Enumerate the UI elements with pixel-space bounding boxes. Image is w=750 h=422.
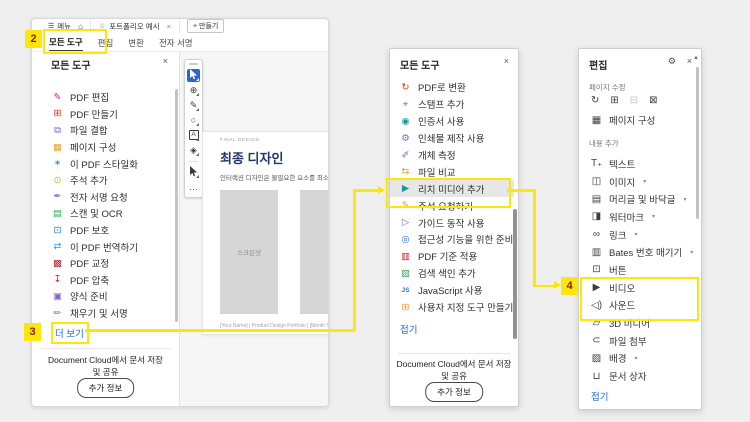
tool-item-custom-tool[interactable]: ⊞ 사용자 지정 도구 만들기 ▾ [390, 299, 514, 316]
section-label-add-content: 내용 추가 [589, 138, 619, 149]
tool-item-guided-actions[interactable]: ▷ 가이드 동작 사용 ▾ [390, 214, 514, 231]
tool-label: 사운드 [609, 298, 635, 312]
star-icon[interactable]: ☆ [99, 22, 105, 30]
tool-icon: ◁) [591, 300, 602, 311]
lasso-tool-icon[interactable]: ○ [187, 114, 200, 127]
scrollbar[interactable] [175, 89, 178, 322]
tool-item-convert-to-pdf[interactable]: ↻ PDF로 변환 ▾ [390, 79, 514, 96]
tool-item-request-comments[interactable]: ✎ 주석 요청하기 ▾ [390, 197, 514, 214]
tool-icon: ✏ [52, 308, 63, 319]
tool-label: 주석 추가 [70, 173, 108, 187]
object-select-tool-icon[interactable] [187, 166, 200, 179]
acrobat-window: ☰ 메뉴 ⌂ ☆ 포트폴리오 예시 × + 만들기 모든 도구 편집 변환 전자… [31, 18, 329, 407]
more-info-button[interactable]: 추가 정보 [77, 378, 135, 398]
more-tools-icon[interactable]: … [187, 181, 200, 194]
page-action-icon: ⊠ [649, 95, 657, 106]
tool-item-add-comments[interactable]: ⊙ 주석 추가 ▾ [32, 172, 174, 189]
tool-icon: ▤ [591, 194, 602, 205]
new-tab-button[interactable]: + 만들기 [187, 19, 224, 33]
all-tools-panel: 모든 도구 × ✎ PDF 편집 ▾ ⊞ PDF 만들기 ▾ ⧉ [32, 52, 179, 406]
collapse-link[interactable]: 접기 [400, 322, 417, 336]
connector-line [85, 329, 355, 332]
tool-item-watermark[interactable]: ◨ 워터마크 ▾ [579, 208, 697, 226]
tool-label: 인증서 사용 [418, 114, 464, 128]
close-tab-icon[interactable]: × [167, 22, 171, 31]
tool-label: PDF 기준 적용 [418, 249, 477, 263]
screenshot-placeholder [300, 190, 328, 314]
page-title: 최종 디자인 [220, 148, 328, 167]
page-body-text: 인터랙션 디자인은 불필요한 요소를 최소화하고 [220, 172, 328, 182]
tool-item-header-footer[interactable]: ▤ 머리글 및 바닥글 ▾ [579, 190, 697, 208]
tool-label: 문서 상자 [609, 369, 647, 383]
tool-item-add-image[interactable]: ◫ 이미지 ▾ [579, 173, 697, 191]
tool-icon: ◨ [591, 211, 602, 222]
tool-label: 머리글 및 바닥글 [609, 192, 675, 206]
gear-icon[interactable]: ⚙ [668, 56, 676, 67]
page-action-icons: ↻⊞⊟⊠ [591, 95, 658, 106]
tool-icon: ⇄ [52, 241, 63, 252]
chevron-down-icon: ▾ [634, 231, 637, 238]
see-more-link[interactable]: 더 보기 [55, 326, 84, 340]
tool-icon: ▤ [52, 208, 63, 219]
close-icon[interactable]: × [687, 56, 692, 66]
tool-label: 채우기 및 서명 [70, 306, 128, 320]
tool-icon: ✶ [52, 158, 63, 169]
tool-icon: ⇆ [400, 166, 411, 177]
tool-item-combine-files[interactable]: ⧉ 파일 결합 ▾ [32, 122, 174, 139]
page-action-icon: ⊟ [630, 95, 638, 106]
tool-icon: ▥ [591, 247, 602, 258]
divider [189, 161, 198, 162]
organize-pages-row: ▦ 페이지 구성 [579, 113, 697, 127]
tool-label: 이 PDF 스타일화 [70, 157, 138, 171]
tool-item-scan-ocr[interactable]: ▤ 스캔 및 OCR ▾ [32, 205, 174, 222]
tool-item-search-index[interactable]: ▧ 검색 색인 추가 ▾ [390, 265, 514, 282]
tool-label: PDF 보호 [70, 223, 109, 237]
tool-label: 사용자 지정 도구 만들기 [418, 300, 513, 314]
tool-label: 텍스트 [609, 157, 635, 171]
all-tools-expanded-panel: 모든 도구 × ↻ PDF로 변환 ▾ ⌖ 스탬프 추가 ▾ ◉ 인증서 사용 … [389, 48, 519, 407]
tool-icon: ↧ [52, 274, 63, 285]
tool-label: 접근성 기능을 위한 준비 [418, 232, 513, 246]
tool-label: 스캔 및 OCR [70, 206, 123, 220]
screenshot-canvas: ☰ 메뉴 ⌂ ☆ 포트폴리오 예시 × + 만들기 모든 도구 편집 변환 전자… [0, 0, 750, 422]
tool-item-document-box[interactable]: ⊔ 문서 상자 ▾ [579, 367, 697, 385]
tab-convert[interactable]: 변환 [128, 34, 144, 51]
tool-item-compare-files[interactable]: ⇆ 파일 비교 ▾ [390, 163, 514, 180]
tool-item-use-certificate[interactable]: ◉ 인증서 사용 ▾ [390, 113, 514, 130]
tool-label: 페이지 구성 [609, 113, 655, 127]
tool-item-fill-sign[interactable]: ✏ 채우기 및 서명 ▾ [32, 305, 174, 322]
tool-item-measure-objects[interactable]: ✐ 개체 측정 ▾ [390, 147, 514, 164]
tool-label: PDF 교정 [70, 256, 109, 270]
tool-label: PDF 편집 [70, 90, 109, 104]
tool-label: 이 PDF 번역하기 [70, 240, 138, 254]
tool-item-insert-pages-icon[interactable]: ⊞ [610, 95, 618, 106]
tool-item-video[interactable]: ▶ 비디오 ▾ [579, 279, 697, 297]
tool-item-delete-pages-icon[interactable]: ⊟ [630, 95, 638, 106]
tool-icon: ▷ [400, 217, 411, 228]
tool-item-attach-file[interactable]: ⊂ 파일 첨부 ▾ [579, 332, 697, 350]
tool-label: 리치 미디어 추가 [418, 182, 484, 196]
document-tab[interactable]: ☆ 포트폴리오 예시 × [90, 19, 180, 33]
chevron-down-icon: ▾ [634, 355, 637, 362]
tool-label: 3D 미디어 [609, 316, 650, 330]
tool-item-protect-pdf[interactable]: ⊡ PDF 보호 ▾ [32, 222, 174, 239]
tool-label: PDF로 변환 [418, 80, 466, 94]
tool-item-pdf-standards[interactable]: ▥ PDF 기준 적용 ▾ [390, 248, 514, 265]
tool-item-accessibility-prep[interactable]: ◎ 접근성 기능을 위한 준비 ▾ [390, 231, 514, 248]
connector-arrow-icon [378, 186, 385, 194]
tool-label: PDF 만들기 [70, 107, 118, 121]
tool-icon: ◉ [400, 116, 411, 127]
tool-label: 워터마크 [609, 210, 644, 224]
page-action-icon: ↻ [591, 95, 599, 106]
chevron-down-icon: ▾ [643, 178, 646, 185]
tool-icon: ▣ [52, 291, 63, 302]
connector-line [353, 189, 379, 192]
tool-icon: ⊞ [52, 108, 63, 119]
select-tool-icon[interactable] [187, 69, 200, 82]
scrollbar[interactable] [513, 209, 517, 339]
tool-icon: ▨ [591, 353, 602, 364]
step-badge-3: 3 [24, 323, 41, 341]
menu-label: 메뉴 [57, 21, 71, 32]
tool-item-print-production[interactable]: ⚙ 인쇄물 제작 사용 ▾ [390, 130, 514, 147]
step-badge-4: 4 [561, 277, 578, 295]
tool-icon: ⊂ [591, 335, 602, 346]
tool-icon: ◫ [591, 176, 602, 187]
divider [398, 353, 510, 354]
tool-label: 개체 측정 [418, 148, 456, 162]
collapse-link[interactable]: 접기 [591, 389, 608, 403]
step-badge-2: 2 [25, 30, 42, 48]
tool-list: T₊ 텍스트 ▾ ◫ 이미지 ▾ ▤ 머리글 및 바닥글 ▾ ◨ 워터마크 ▾ … [579, 155, 697, 385]
connector-line [507, 189, 535, 192]
tool-icon: ✎ [52, 92, 63, 103]
tab-esign[interactable]: 전자 서명 [159, 34, 193, 51]
tool-item-add-text[interactable]: T₊ 텍스트 ▾ [579, 155, 697, 173]
tool-item-background[interactable]: ▨ 배경 ▾ [579, 350, 697, 368]
tool-label: 가이드 동작 사용 [418, 216, 484, 230]
organize-pages-icon: ▦ [591, 115, 602, 126]
screenshot-placeholder: 스크린샷 [220, 190, 278, 314]
connector-arrow-icon [554, 281, 561, 289]
quick-tools-toolbar: ⊕ ✎ ○ A ◈ … [184, 59, 203, 198]
cloud-promo-text: Document Cloud에서 문서 저장 및 공유 [390, 359, 518, 383]
pen-tool-icon[interactable]: ✎ [187, 99, 200, 112]
tool-label: 전자 서명 요청 [70, 190, 128, 204]
tool-label: 페이지 구성 [70, 140, 116, 154]
panel-title: 모든 도구 [51, 57, 91, 72]
more-info-button[interactable]: 추가 정보 [425, 382, 483, 402]
chevron-down-icon: ▾ [683, 196, 686, 203]
tool-icon: ⊙ [52, 175, 63, 186]
stamp-tool-icon[interactable]: ◈ [187, 144, 200, 157]
tool-item-sound[interactable]: ◁) 사운드 ▾ [579, 297, 697, 315]
tool-icon: ▥ [400, 251, 411, 262]
tool-icon: ▶ [591, 282, 602, 293]
tool-icon: ⌖ [400, 99, 411, 110]
toolbar-drag-handle[interactable] [189, 63, 198, 65]
scroll-up-arrow-icon[interactable]: ▲ [693, 55, 699, 61]
edit-panel: 편집 ⚙ × ▲ 페이지 수정 ↻⊞⊟⊠ ▦ 페이지 구성 내용 추가 T₊ 텍… [578, 48, 702, 410]
tool-label: 양식 준비 [70, 289, 108, 303]
tool-item-organize-pages[interactable]: ▦ 페이지 구성 ▾ [32, 139, 174, 156]
tool-label: Bates 번호 매기기 [609, 245, 682, 259]
divider [40, 348, 171, 349]
tool-icon: ✐ [400, 150, 411, 161]
tool-item-redact-pdf[interactable]: ▩ PDF 교정 ▾ [32, 255, 174, 272]
tool-item-create-pdf[interactable]: ⊞ PDF 만들기 ▾ [32, 106, 174, 123]
tool-icon: T₊ [591, 158, 602, 169]
document-area: ⊕ ✎ ○ A ◈ … FINAL DESIGN 최종 디자인 인터랙션 디자 [179, 52, 328, 406]
page-eyebrow: FINAL DESIGN [220, 137, 328, 142]
tool-item-link[interactable]: ∞ 링크 ▾ [579, 226, 697, 244]
tool-item-request-esign[interactable]: ✒ 전자 서명 요청 ▾ [32, 189, 174, 206]
main-menu-button[interactable]: ☰ 메뉴 [48, 21, 71, 32]
tool-item-add-rich-media[interactable]: ▶ 리치 미디어 추가 ▾ [390, 180, 514, 197]
tool-item-stylize-pdf[interactable]: ✶ 이 PDF 스타일화 ▾ [32, 155, 174, 172]
tool-item-compress-pdf[interactable]: ↧ PDF 압축 ▾ [32, 272, 174, 289]
tool-icon: ⊡ [591, 264, 602, 275]
connector-line [533, 285, 555, 288]
tool-label: 이미지 [609, 175, 635, 189]
tool-label: 파일 비교 [418, 165, 456, 179]
connector-line [353, 189, 356, 331]
tool-label: 스탬프 추가 [418, 97, 464, 111]
tool-label: 검색 색인 추가 [418, 266, 476, 280]
close-icon[interactable]: × [163, 56, 168, 66]
tool-icon: ⊔ [591, 371, 602, 382]
home-icon[interactable]: ⌂ [78, 22, 83, 31]
tab-all-tools[interactable]: 모든 도구 [49, 33, 83, 51]
tool-icon: ▱ [591, 318, 602, 329]
tool-item-rotate-pages-icon[interactable]: ↻ [591, 95, 599, 106]
tool-list: ✎ PDF 편집 ▾ ⊞ PDF 만들기 ▾ ⧉ 파일 결합 ▾ ▦ [32, 89, 174, 321]
tool-item-translate-pdf[interactable]: ⇄ 이 PDF 번역하기 ▾ [32, 238, 174, 255]
tool-label: 파일 첨부 [609, 334, 647, 348]
tool-label: 버튼 [609, 263, 626, 277]
hamburger-icon: ☰ [48, 22, 54, 30]
tool-item-bates-numbering[interactable]: ▥ Bates 번호 매기기 ▾ [579, 243, 697, 261]
tool-icon: ✎ [400, 200, 411, 211]
tool-icon: ▦ [52, 142, 63, 153]
page-action-icon: ⊞ [610, 95, 618, 106]
tool-icon: JS [400, 287, 411, 294]
tool-icon: ✒ [52, 191, 63, 202]
tool-label: 파일 결합 [70, 123, 108, 137]
close-icon[interactable]: × [504, 56, 509, 66]
text-box-tool-icon[interactable]: A [187, 129, 200, 142]
tool-icon: ⊡ [52, 225, 63, 236]
tool-item-use-javascript[interactable]: JS JavaScript 사용 ▾ [390, 282, 514, 299]
document-tab-title: 포트폴리오 예시 [109, 21, 159, 32]
tool-icon: ▩ [52, 258, 63, 269]
tool-icon: ∞ [591, 229, 602, 240]
tool-label: 비디오 [609, 281, 635, 295]
tool-item-add-stamp[interactable]: ⌖ 스탬프 추가 ▾ [390, 96, 514, 113]
cloud-promo-text: Document Cloud에서 문서 저장 및 공유 [32, 355, 179, 379]
tool-label: 주석 요청하기 [418, 199, 473, 213]
pdf-page: FINAL DESIGN 최종 디자인 인터랙션 디자인은 불필요한 요소를 최… [202, 131, 328, 335]
zoom-tool-icon[interactable]: ⊕ [187, 84, 200, 97]
tool-label: JavaScript 사용 [418, 283, 482, 297]
tool-icon: ⧉ [52, 125, 63, 136]
section-label-modify-pages: 페이지 수정 [589, 82, 626, 93]
menu-bar: ☰ 메뉴 ⌂ ☆ 포트폴리오 예시 × + 만들기 [32, 19, 328, 33]
tool-label: 링크 [609, 228, 626, 242]
tool-item-3d-media[interactable]: ▱ 3D 미디어 ▾ [579, 314, 697, 332]
tab-edit[interactable]: 편집 [98, 34, 114, 51]
tool-item-extract-pages-icon[interactable]: ⊠ [649, 95, 657, 106]
organize-pages[interactable]: ▦ 페이지 구성 [579, 113, 697, 127]
chevron-down-icon: ▾ [652, 213, 655, 220]
tool-item-button[interactable]: ⊡ 버튼 ▾ [579, 261, 697, 279]
tool-label: 인쇄물 제작 사용 [418, 131, 484, 145]
tool-label: PDF 압축 [70, 273, 109, 287]
tool-icon: ◎ [400, 234, 411, 245]
tool-icon: ▧ [400, 268, 411, 279]
tool-item-prepare-form[interactable]: ▣ 양식 준비 ▾ [32, 288, 174, 305]
tool-icon: ⊞ [400, 302, 411, 313]
tool-icon: ↻ [400, 82, 411, 93]
tool-list: ↻ PDF로 변환 ▾ ⌖ 스탬프 추가 ▾ ◉ 인증서 사용 ▾ ⚙ 인쇄물 … [390, 79, 514, 315]
tool-tab-bar: 모든 도구 편집 변환 전자 서명 [32, 33, 328, 52]
tool-label: 배경 [609, 351, 626, 365]
chevron-down-icon: ▾ [690, 249, 693, 256]
panel-title: 모든 도구 [400, 57, 440, 72]
connector-line [533, 189, 536, 287]
tool-icon: ⚙ [400, 133, 411, 144]
tool-item-edit-pdf[interactable]: ✎ PDF 편집 ▾ [32, 89, 174, 106]
tool-icon: ▶ [400, 183, 411, 194]
panel-title: 편집 [589, 57, 607, 72]
